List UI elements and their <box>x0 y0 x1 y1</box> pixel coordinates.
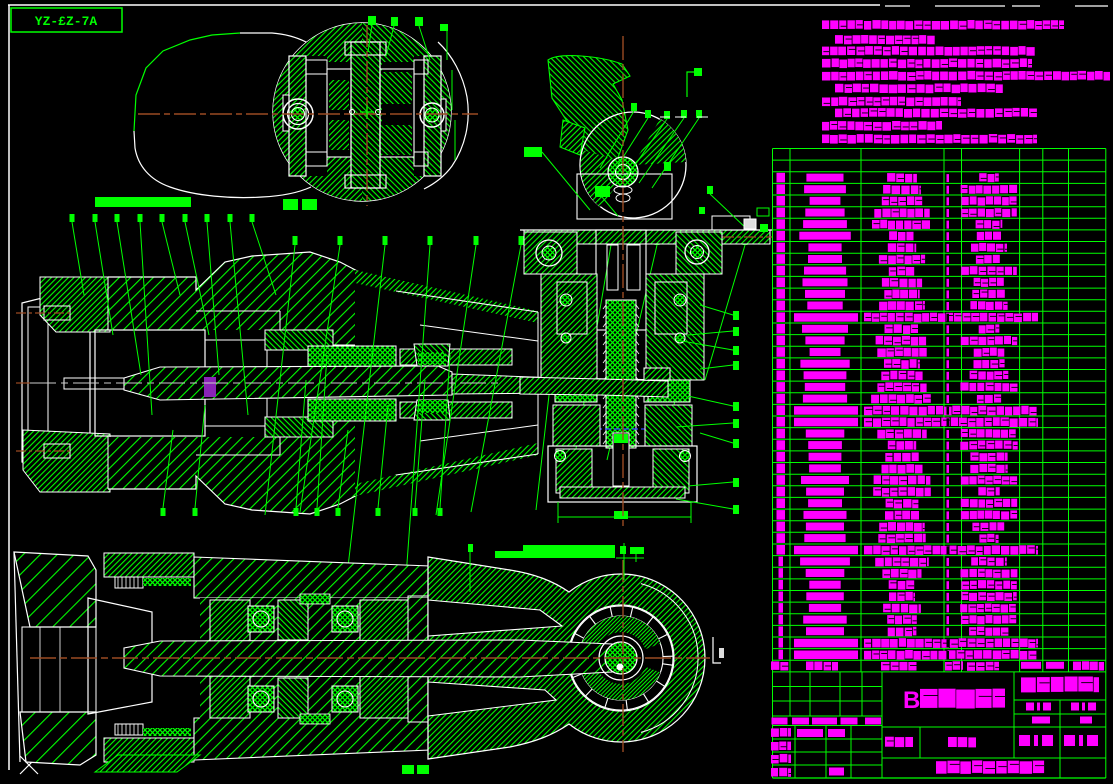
svg-text:YZ-£Z-7A: YZ-£Z-7A <box>35 14 98 29</box>
svg-text:B: B <box>903 687 920 714</box>
